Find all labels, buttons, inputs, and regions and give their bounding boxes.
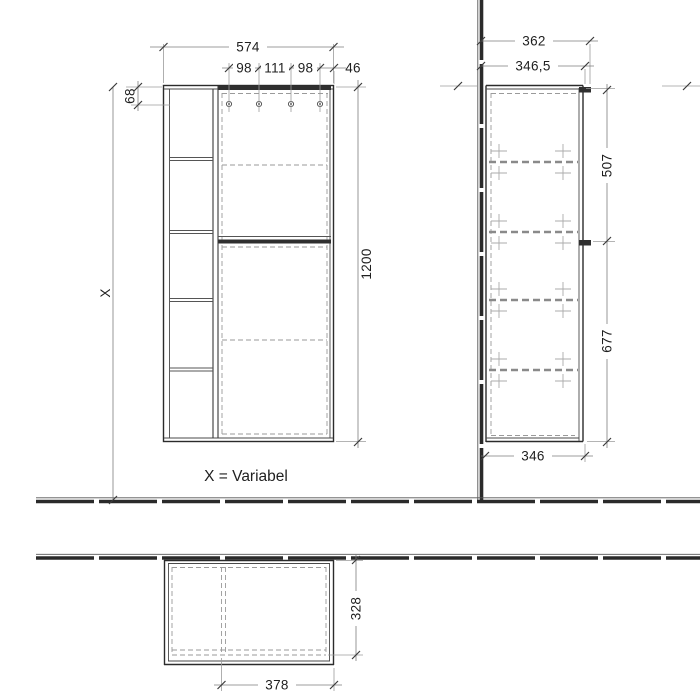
technical-drawing-page: 574 98 111 98 46 68 X 1200 X = Variabel … [0, 0, 700, 700]
dim-lower-section-height: 677 [600, 329, 615, 352]
lower-handle-profile [579, 240, 591, 246]
open-shelves [170, 158, 213, 372]
lower-door-handle-bar [219, 240, 332, 244]
dim-top-to-holes: 68 [123, 88, 138, 104]
dim-depth-body: 346,5 [515, 59, 550, 74]
dim-hole-spacing-center: 111 [264, 61, 285, 76]
dim-width-total: 574 [236, 40, 260, 55]
dim-height-variable: X [98, 288, 113, 297]
variable-height-note: X = Variabel [204, 468, 288, 485]
dim-hole-spacing-left: 98 [236, 61, 252, 76]
cabinet-technical-drawing: 574 98 111 98 46 68 X 1200 X = Variabel … [0, 0, 700, 700]
plan-hidden-edges [172, 567, 326, 655]
floor-line-upper [36, 498, 700, 502]
dim-height-total: 1200 [359, 248, 374, 279]
plan-view-dimensions: 328 378 [214, 554, 364, 693]
dim-depth-bottom: 346 [521, 449, 544, 464]
handle-mounting-holes [226, 101, 322, 106]
hidden-shelf-lines [489, 162, 578, 370]
front-view-dimensions: 574 98 111 98 46 68 X 1200 X = Variabel [98, 40, 700, 505]
upper-door-handle-bar [219, 86, 332, 90]
plan-view [164, 560, 334, 665]
side-view-dimensions: 362 346,5 507 677 346 [477, 34, 615, 464]
dim-door-width: 378 [265, 678, 288, 693]
side-section-view [486, 86, 591, 443]
door-panels [218, 86, 331, 434]
shelf-pin-cross-marks [491, 144, 571, 388]
upper-handle-profile [579, 87, 591, 93]
wall-line-plan [36, 554, 700, 558]
wall-section-vertical [478, 0, 482, 500]
dim-plan-depth: 328 [349, 597, 364, 620]
dim-upper-section-height: 507 [600, 154, 615, 177]
front-elevation-view [164, 86, 334, 442]
dim-hole-spacing-right: 98 [298, 61, 314, 76]
dim-hole-to-edge: 46 [345, 61, 361, 76]
dim-depth-total: 362 [522, 34, 545, 49]
